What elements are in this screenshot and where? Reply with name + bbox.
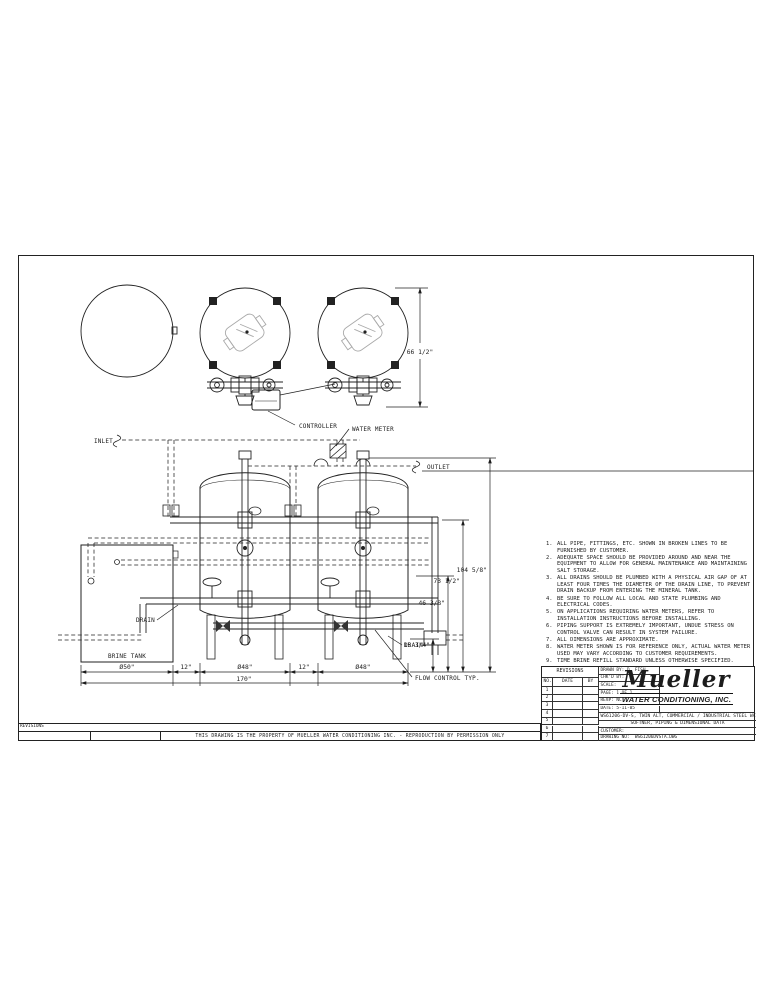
dim-drain-height: 15 3/4": [403, 642, 430, 649]
note-text: ALL DIMENSIONS ARE APPROXIMATE.: [557, 637, 755, 644]
revisions-strip: REVISIONS: [18, 723, 541, 731]
dim-overall-height: 104 5/8": [457, 567, 487, 574]
company-name: WATER CONDITIONING, INC.: [620, 693, 733, 705]
revision-row-date: [553, 718, 583, 726]
revision-row-no: 6: [542, 726, 553, 734]
revision-row-by: [583, 726, 599, 734]
water-meter-label: WATER METER: [352, 426, 394, 433]
note-text: WATER METER SHOWN IS FOR REFERENCE ONLY,…: [557, 644, 755, 657]
revision-row-no: 2: [542, 695, 553, 703]
note-text: BE SURE TO FOLLOW ALL LOCAL AND STATE PL…: [557, 596, 755, 609]
revision-row-date: [553, 702, 583, 710]
description-line1: WS61206-DV-S, TWIN ALT, COMMERCIAL / IND…: [599, 713, 756, 721]
notes-block: 1.ALL PIPE, FITTINGS, ETC. SHOWN IN BROK…: [546, 541, 755, 665]
revision-row-date: [553, 733, 583, 741]
property-notice: THIS DRAWING IS THE PROPERTY OF MUELLER …: [160, 732, 540, 743]
water-meter-leader: [336, 429, 349, 446]
description-line2: SOFTNER, PIPING & DIMENSIONAL DATA: [599, 721, 756, 729]
piping-broken: [58, 440, 463, 640]
dim-brine-dia: Ø50": [119, 663, 134, 671]
note-item: 5.ON APPLICATIONS REQUIRING WATER METERS…: [546, 609, 755, 622]
note-item: 3.ALL DRAINS SHOULD BE PLUMBED WITH A PH…: [546, 575, 755, 595]
flow-control-leader: [375, 630, 412, 677]
revision-row-by: [583, 702, 599, 710]
note-number: 2.: [546, 555, 557, 575]
title-block: REVISIONS NO. DATE BY 1 2 3 4 5 6 7 DRAW…: [541, 666, 755, 741]
dim-gap2: 12": [298, 664, 309, 671]
drawing-sheet: CONTROLLER 66 1/2": [0, 0, 773, 1000]
note-item: 2.ADEQUATE SPACE SHOULD BE PROVIDED AROU…: [546, 555, 755, 575]
brine-tank: [81, 545, 178, 662]
drawing-no-label: DRAWING NO:: [601, 735, 630, 740]
revisions-col-by: BY: [583, 678, 599, 687]
revision-row-no: 3: [542, 702, 553, 710]
drain-left-label: DRAIN: [136, 617, 155, 624]
note-number: 5.: [546, 609, 557, 622]
revision-row-no: 5: [542, 718, 553, 726]
dim-tank1-dia: Ø48": [237, 663, 252, 671]
revisions-title: REVISIONS: [542, 667, 599, 678]
note-item: 9.TIME BRINE REFILL STANDARD UNLESS OTHE…: [546, 658, 755, 665]
top-view: CONTROLLER 66 1/2": [81, 285, 433, 430]
note-number: 4.: [546, 596, 557, 609]
controller-label: CONTROLLER: [299, 423, 337, 430]
revision-row-date: [553, 687, 583, 695]
mineral-tank-top-view-left: [200, 288, 290, 405]
pipe-crossover-loops: [113, 435, 420, 473]
note-item: 1.ALL PIPE, FITTINGS, ETC. SHOWN IN BROK…: [546, 541, 755, 554]
note-item: 6.PIPING SUPPORT IS EXTREMELY IMPORTANT,…: [546, 623, 755, 636]
note-text: ON APPLICATIONS REQUIRING WATER METERS, …: [557, 609, 755, 622]
dim-tank2-dia: Ø48": [355, 663, 370, 671]
revision-row-date: [553, 695, 583, 703]
outlet-label: OUTLET: [427, 464, 450, 471]
controller-leader: [268, 411, 295, 425]
revision-row-by: [583, 733, 599, 741]
note-text: ALL DRAINS SHOULD BE PLUMBED WITH A PHYS…: [557, 575, 755, 595]
revision-row-date: [553, 726, 583, 734]
note-number: 6.: [546, 623, 557, 636]
note-text: PIPING SUPPORT IS EXTREMELY IMPORTANT, U…: [557, 623, 755, 636]
mineral-tank-front-right: [318, 473, 408, 659]
note-text: ALL PIPE, FITTINGS, ETC. SHOWN IN BROKEN…: [557, 541, 755, 554]
revisions-col-date: DATE: [553, 678, 583, 687]
water-meter-symbol: [330, 444, 346, 458]
customer-label: CUSTOMER:: [601, 729, 625, 734]
revision-row-no: 4: [542, 710, 553, 718]
revision-row-date: [553, 710, 583, 718]
note-number: 7.: [546, 637, 557, 644]
property-strip-cell: [90, 732, 161, 741]
inlet-label: INLET: [94, 438, 113, 445]
drain-left-leader: [157, 605, 178, 620]
revision-row-no: 7: [542, 733, 553, 741]
note-text: TIME BRINE REFILL STANDARD UNLESS OTHERW…: [557, 658, 755, 665]
note-item: 4.BE SURE TO FOLLOW ALL LOCAL AND STATE …: [546, 596, 755, 609]
brine-tank-label: BRINE TANK: [108, 653, 146, 660]
dim-top-view-height-label: 66 1/2": [407, 349, 434, 356]
revisions-strip-label: REVISIONS: [20, 724, 44, 729]
revision-row-no: 1: [542, 687, 553, 695]
revision-row-by: [583, 710, 599, 718]
dim-inlet-height: 73 1/2": [433, 578, 460, 585]
note-number: 1.: [546, 541, 557, 554]
mineral-tank-top-view-right: [318, 288, 408, 405]
drawing-no-value: WS61206DVSTA.DWG: [635, 735, 677, 740]
drawing-no-cell: DRAWING NO: WS61206DVSTA.DWG: [599, 735, 756, 741]
dim-gap1: 12": [180, 664, 191, 671]
revision-row-by: [583, 687, 599, 695]
mineral-tank-front-left: [200, 473, 290, 659]
brine-tank-top-view: [81, 285, 177, 377]
note-item: 8.WATER METER SHOWN IS FOR REFERENCE ONL…: [546, 644, 755, 657]
note-number: 8.: [546, 644, 557, 657]
revision-row-by: [583, 695, 599, 703]
company-logo: Mueller WATER CONDITIONING, INC.: [599, 667, 754, 713]
drain-right-leader: [388, 636, 402, 645]
note-number: 3.: [546, 575, 557, 595]
revisions-col-no: NO.: [542, 678, 553, 687]
property-strip-cell: [18, 732, 91, 741]
dim-overall-width: 170": [236, 676, 251, 683]
property-strip: THIS DRAWING IS THE PROPERTY OF MUELLER …: [18, 731, 541, 741]
note-item: 7.ALL DIMENSIONS ARE APPROXIMATE.: [546, 637, 755, 644]
dim-mid-height: 46 3/8": [418, 600, 445, 607]
flow-control-label: FLOW CONTROL TYP.: [415, 675, 480, 682]
revision-row-by: [583, 718, 599, 726]
note-text: ADEQUATE SPACE SHOULD BE PROVIDED AROUND…: [557, 555, 755, 575]
note-number: 9.: [546, 658, 557, 665]
dim-top-view-height: [386, 288, 428, 407]
company-logo-script: Mueller: [599, 667, 754, 693]
